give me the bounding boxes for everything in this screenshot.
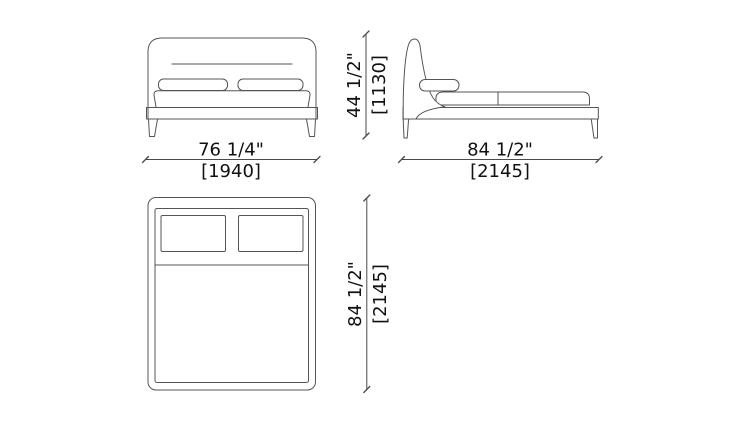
plan-mattress [155, 209, 309, 383]
plan-depth-dimension: 84 1/2" [2145] [345, 195, 391, 393]
technical-drawing-canvas: 76 1/4" [1940] 44 1/2" [1130] 84 1/2" [2… [0, 0, 744, 430]
bed-technical-drawing-page: { "drawing": { "subject": "bed", "views"… [0, 0, 744, 430]
front-width-label-mm: [1940] [201, 161, 261, 182]
side-mattress [436, 92, 590, 105]
front-rail [147, 108, 318, 120]
front-width-dimension: 76 1/4" [1940] [143, 140, 321, 183]
side-headboard [403, 39, 445, 119]
side-depth-dimension: 84 1/2" [2145] [399, 140, 603, 183]
side-leg-right [591, 119, 597, 138]
front-view [147, 38, 318, 137]
plan-pillow-left [161, 216, 226, 252]
bed-height-label-mm: [1130] [369, 55, 390, 115]
side-view [403, 39, 598, 138]
front-width-label-inches: 76 1/4" [198, 140, 264, 161]
bed-height-dimension: 44 1/2" [1130] [344, 31, 390, 139]
front-mattress [154, 91, 310, 107]
side-leg-left [403, 119, 408, 138]
plan-view [148, 198, 316, 391]
side-pillow [420, 80, 460, 92]
plan-depth-label-inches: 84 1/2" [345, 261, 366, 327]
front-pillow-right [238, 79, 303, 91]
front-pillow-left [159, 79, 228, 91]
side-depth-label-mm: [2145] [470, 161, 530, 182]
front-leg-right [307, 119, 316, 137]
plan-frame-outline [148, 198, 316, 391]
bed-height-label-inches: 44 1/2" [344, 52, 365, 118]
front-leg-left [149, 119, 158, 137]
side-depth-label-inches: 84 1/2" [467, 140, 533, 161]
plan-depth-label-mm: [2145] [370, 264, 391, 324]
plan-pillow-right [239, 216, 304, 252]
